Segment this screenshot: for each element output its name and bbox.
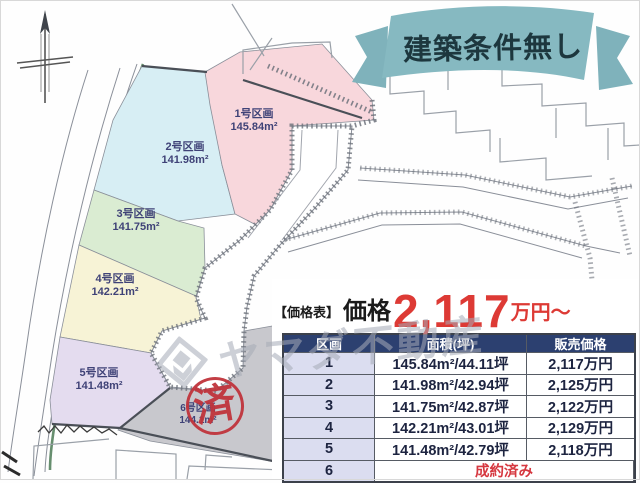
col-header-price: 販売価格 xyxy=(527,335,634,353)
lot-5-area: 141.48m² xyxy=(60,380,138,393)
price-label: 価格 xyxy=(339,291,393,330)
lot-2-name: 2号区画 xyxy=(165,141,204,153)
row-5-lot: 5 xyxy=(284,439,375,461)
lot-4-area: 142.21m² xyxy=(76,286,154,299)
east-roads xyxy=(284,168,632,280)
row-2-lot: 2 xyxy=(284,375,375,397)
lot-5-name: 5号区画 xyxy=(79,367,118,379)
lot-3-name: 3号区画 xyxy=(116,208,155,220)
row-1-lot: 1 xyxy=(284,353,375,375)
row-6-lot: 6 xyxy=(284,461,375,482)
row-4-lot: 4 xyxy=(284,418,375,440)
north-compass-icon xyxy=(17,10,73,103)
row-3-price: 2,122万円 xyxy=(527,396,634,418)
banner-label: 建築条件無し xyxy=(396,23,591,69)
lot-4-name: 4号区画 xyxy=(95,273,134,285)
row-2-price: 2,125万円 xyxy=(527,375,634,397)
lot-3-area: 141.75m² xyxy=(97,221,175,234)
row-1-area: 145.84m²/44.11坪 xyxy=(375,353,527,375)
row-5-area: 141.48m²/42.79坪 xyxy=(375,439,527,461)
price-amount: 2,117 xyxy=(393,293,511,330)
lot-2-area: 141.98m² xyxy=(146,154,224,167)
lot-4-label: 4号区画 142.21m² xyxy=(76,273,154,299)
lot-2-label: 2号区画 141.98m² xyxy=(146,141,224,167)
row-3-lot: 3 xyxy=(284,396,375,418)
row-5-price: 2,118万円 xyxy=(527,439,634,461)
price-list-prefix: 【価格表】 xyxy=(274,302,339,330)
row-4-price: 2,129万円 xyxy=(527,418,634,440)
corner-marks xyxy=(2,452,20,475)
row-2-area: 141.98m²/42.94坪 xyxy=(375,375,527,397)
price-table: 区画 面積(坪) 販売価格 1 145.84m²/44.11坪 2,117万円 … xyxy=(282,333,636,483)
lot-5-label: 5号区画 141.48m² xyxy=(60,367,138,393)
lot-1-area: 145.84m² xyxy=(215,121,293,134)
lot-3-label: 3号区画 141.75m² xyxy=(97,208,175,234)
row-1-price: 2,117万円 xyxy=(527,353,634,375)
col-header-lot: 区画 xyxy=(284,335,375,353)
row-4-area: 142.21m²/43.01坪 xyxy=(375,418,527,440)
row-6-status: 成約済み xyxy=(375,461,634,482)
price-suffix: 万円〜 xyxy=(511,296,571,330)
row-3-area: 141.75m²/42.87坪 xyxy=(375,396,527,418)
col-header-area: 面積(坪) xyxy=(375,335,527,353)
lot-1-name: 1号区画 xyxy=(234,108,273,120)
price-headline: 【価格表】 価格 2,117 万円〜 xyxy=(272,279,638,330)
price-panel: 【価格表】 価格 2,117 万円〜 区画 面積(坪) 販売価格 1 145.8… xyxy=(272,279,638,479)
lot-1-label: 1号区画 145.84m² xyxy=(215,108,293,134)
